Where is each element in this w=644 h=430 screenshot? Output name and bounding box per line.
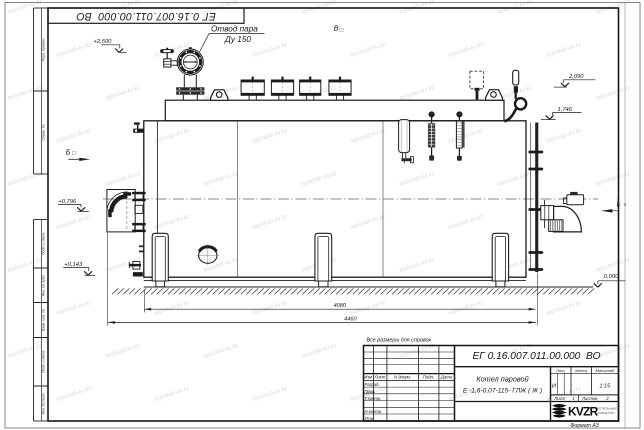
svg-text:+0,796: +0,796 bbox=[58, 199, 77, 205]
svg-text:Масштаб: Масштаб bbox=[596, 368, 615, 373]
svg-text:1: 1 bbox=[572, 396, 574, 401]
svg-text:Е -1,6-0,07-115- ГЛЖ ( Ж ): Е -1,6-0,07-115- ГЛЖ ( Ж ) bbox=[463, 388, 542, 395]
svg-text:В: В bbox=[334, 24, 339, 33]
svg-text:Подп. и дата: Подп. и дата bbox=[41, 233, 45, 256]
svg-text:+2,500: +2,500 bbox=[94, 39, 113, 45]
svg-text:ЕГ 0.16.007.011.00.000 ВО: ЕГ 0.16.007.011.00.000 ВО bbox=[472, 351, 600, 362]
svg-text:ЕГ 0.16.007.011.00.000 ВО: ЕГ 0.16.007.011.00.000 ВО bbox=[76, 10, 216, 22]
svg-text:Ду 150: Ду 150 bbox=[224, 35, 251, 44]
svg-text:ЗАВОД РЗР: ЗАВОД РЗР bbox=[597, 411, 615, 415]
svg-text:Разраб.: Разраб. bbox=[365, 382, 380, 387]
svg-text:а: а bbox=[624, 202, 627, 208]
svg-text:2,090: 2,090 bbox=[568, 74, 584, 80]
svg-text:Лист: Лист bbox=[374, 375, 386, 380]
svg-text:4460: 4460 bbox=[344, 317, 357, 323]
svg-text:Н.контр.: Н.контр. bbox=[365, 409, 383, 414]
svg-text:Б: Б bbox=[66, 148, 71, 157]
svg-text:Перв. примен.: Перв. примен. bbox=[41, 38, 45, 62]
svg-text:Лит.: Лит. bbox=[555, 368, 565, 373]
svg-text:Утв.: Утв. bbox=[365, 416, 375, 421]
svg-text:Инв. № подл.: Инв. № подл. bbox=[41, 392, 45, 414]
svg-text:Масса: Масса bbox=[575, 368, 588, 373]
svg-text:Листов: Листов bbox=[581, 396, 598, 401]
svg-text:Пров.: Пров. bbox=[365, 389, 376, 394]
svg-text:КОТЕЛЬНЫЙ: КОТЕЛЬНЫЙ bbox=[597, 407, 617, 411]
svg-text:Подп. и дата: Подп. и дата bbox=[41, 351, 45, 374]
svg-text:KVZR: KVZR bbox=[568, 405, 599, 419]
svg-text:Справ. №: Справ. № bbox=[41, 124, 45, 140]
svg-text:Т.контр.: Т.контр. bbox=[365, 396, 382, 401]
svg-text:+0,143: +0,143 bbox=[64, 262, 83, 268]
svg-text:Отвод пара: Отвод пара bbox=[211, 25, 258, 34]
svg-text:4080: 4080 bbox=[334, 303, 347, 309]
svg-text:Взам. инв. №: Взам. инв. № bbox=[41, 309, 45, 331]
svg-text:Лист: Лист bbox=[553, 396, 565, 401]
svg-text:0,000: 0,000 bbox=[604, 274, 619, 280]
svg-text:Изм: Изм bbox=[364, 375, 372, 380]
svg-text:Подп.: Подп. bbox=[423, 375, 434, 380]
svg-text:N докум.: N докум. bbox=[394, 375, 411, 380]
svg-text:Инв. № дубл.: Инв. № дубл. bbox=[41, 274, 45, 296]
svg-text:1:15: 1:15 bbox=[599, 383, 611, 389]
svg-text:Котел паровой: Котел паровой bbox=[476, 375, 528, 384]
svg-text:Дата: Дата bbox=[440, 375, 453, 380]
svg-text:Все размеры для справок: Все размеры для справок bbox=[367, 337, 432, 343]
svg-text:Формат А3: Формат А3 bbox=[570, 423, 598, 429]
